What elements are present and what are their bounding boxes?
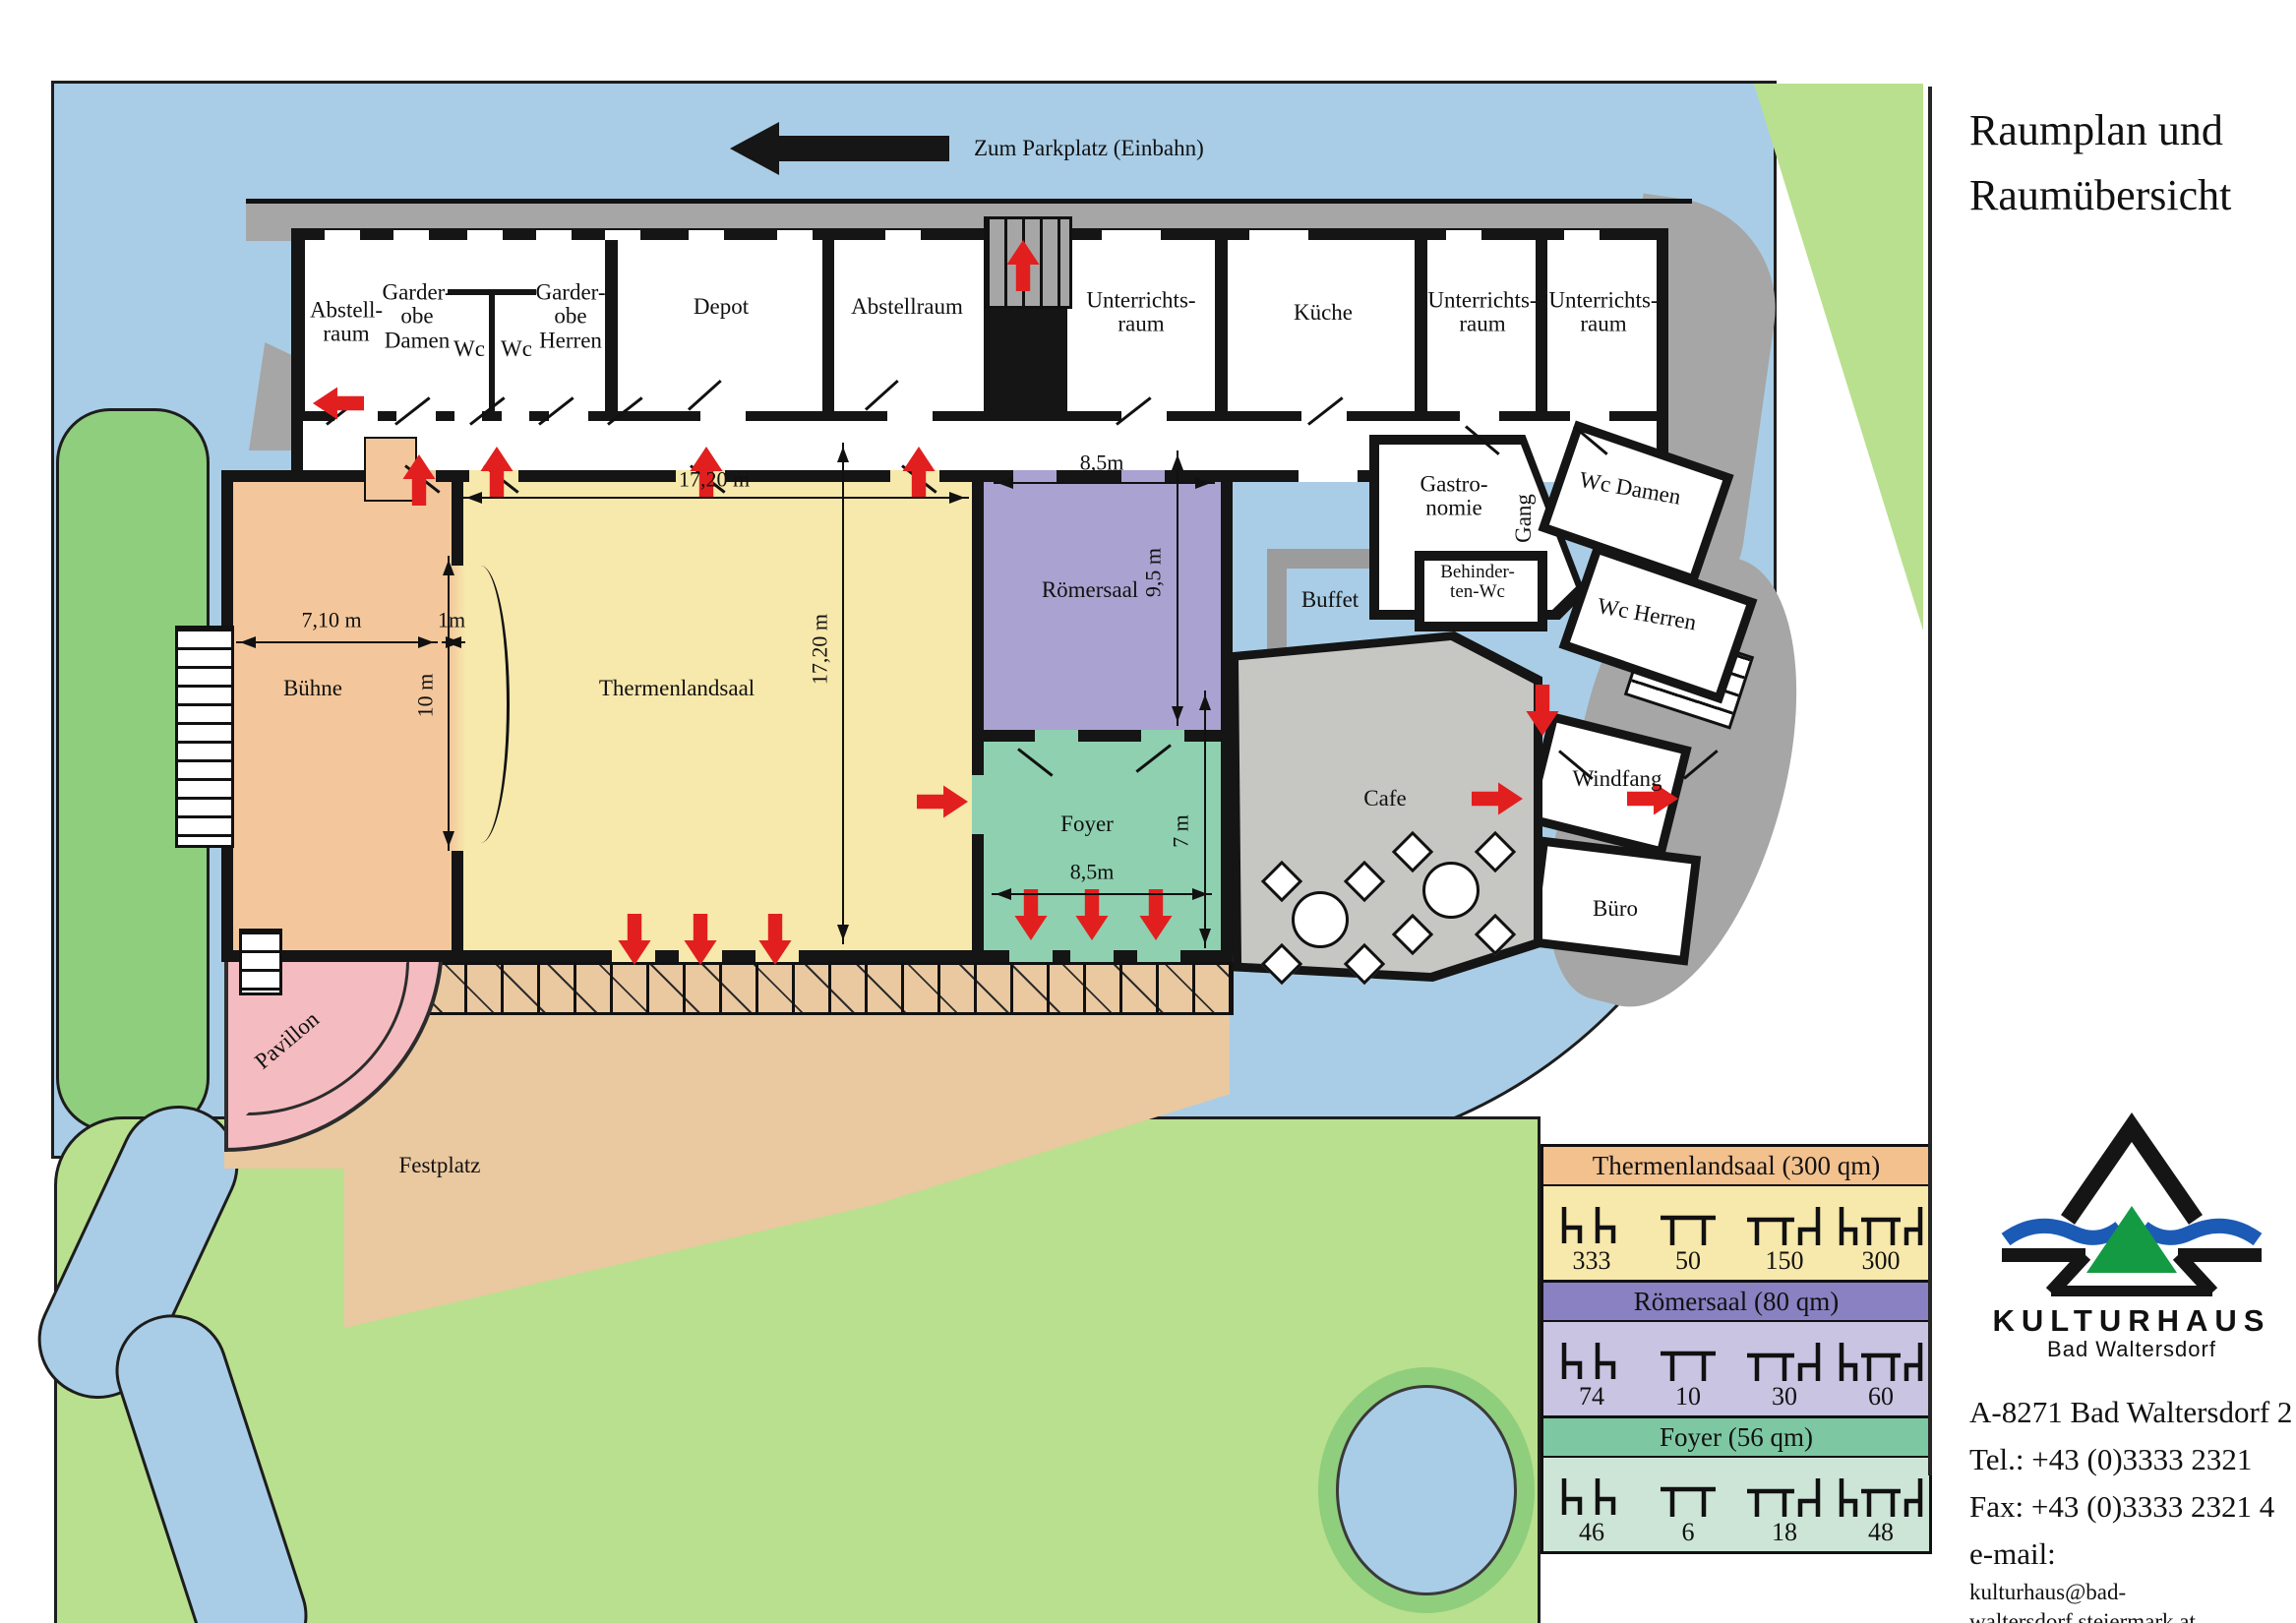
parking-label: Zum Parkplatz (Einbahn) — [974, 136, 1204, 161]
window — [885, 230, 921, 240]
capacity-value: 300 — [1862, 1247, 1901, 1276]
tables-icon — [1657, 1202, 1720, 1247]
floorplan-page: 17,20 m 17,20 m 8,5m 9,5 m 7,10 m 1m 10 … — [0, 0, 2296, 1623]
capacity-value: 74 — [1579, 1383, 1604, 1412]
table-with-chairs-icon — [1834, 1338, 1928, 1383]
dim-label-saal-width: 17,20 m — [679, 467, 750, 490]
dim-label-opening: 10 m — [413, 674, 436, 718]
window — [467, 230, 503, 240]
room-label-foyer: Foyer — [1060, 812, 1114, 836]
capacity-value: 6 — [1682, 1519, 1695, 1547]
room-label-unterrichtsraum-3: Unterrichts- raum — [1548, 289, 1658, 337]
window — [1249, 230, 1308, 240]
dim-label-saal-height: 17,20 m — [808, 614, 830, 685]
logo-subtitle: Bad Waltersdorf — [1969, 1337, 2294, 1362]
cafe-table — [1392, 831, 1510, 949]
window — [777, 230, 813, 240]
room-label-buehne: Bühne — [283, 677, 342, 700]
table-with-chair-icon — [1743, 1473, 1826, 1519]
door-gap — [502, 401, 529, 427]
room-label-wc-1: Wc — [453, 337, 485, 361]
capacity-value: 333 — [1573, 1247, 1611, 1276]
kulturhaus-logo: KULTURHAUS Bad Waltersdorf — [1969, 1090, 2294, 1362]
dim-label-roemer-height: 9,5 m — [1141, 548, 1164, 597]
area-label-festplatz: Festplatz — [398, 1154, 480, 1177]
room-label-buero: Büro — [1593, 897, 1638, 921]
capacity-value: 10 — [1675, 1383, 1701, 1412]
table-with-chair-icon — [1743, 1202, 1826, 1247]
parking-arrow-icon — [777, 136, 949, 161]
stage-ladder — [175, 626, 234, 848]
legend-title: Foyer (56 qm) — [1543, 1418, 1929, 1458]
door-gap — [1460, 401, 1499, 427]
tables-icon — [1657, 1473, 1720, 1519]
room-label-buffet: Buffet — [1301, 588, 1359, 612]
capacity-value: 46 — [1579, 1519, 1604, 1547]
room-label-gastronomie: Gastro- nomie — [1420, 473, 1488, 521]
small-ladder — [239, 929, 282, 995]
dim-label-proszenium: 1m — [438, 608, 465, 631]
window — [605, 230, 640, 240]
capacity-value: 18 — [1772, 1519, 1797, 1547]
table-with-chair-icon — [1743, 1338, 1826, 1383]
terrace-steps — [352, 962, 1234, 1015]
pond-ring — [1318, 1367, 1535, 1613]
dim-line-foyer-height — [1204, 691, 1206, 948]
contact-address: A-8271 Bad Waltersdorf 2 — [1969, 1389, 2296, 1436]
legend-section-roemersaal: Römersaal (80 qm) 74 10 30 60 — [1543, 1283, 1929, 1418]
pond — [1336, 1385, 1517, 1595]
rows-of-chairs-icon — [1554, 1473, 1629, 1519]
table-with-chairs-icon — [1834, 1473, 1928, 1519]
dim-line-opening — [448, 556, 450, 851]
page-title: Raumplan und Raumübersicht — [1969, 98, 2294, 228]
room-label-garderobe-damen: Garder- obe Damen — [382, 280, 452, 352]
capacity-value: 30 — [1772, 1383, 1797, 1412]
door-gap — [1121, 470, 1165, 482]
room-abstellraum-2 — [834, 240, 984, 411]
table-with-chairs-icon — [1834, 1202, 1928, 1247]
room-label-windfang: Windfang — [1572, 767, 1662, 791]
room-label-unterrichtsraum-1: Unterrichts- raum — [1086, 289, 1195, 337]
window — [325, 230, 360, 240]
room-label-garderobe-herren: Garder- obe Herren — [535, 280, 605, 352]
window — [536, 230, 572, 240]
room-label-unterrichtsraum-2: Unterrichts- raum — [1427, 289, 1537, 337]
contact-fax: Fax: +43 (0)3333 2321 4 — [1969, 1483, 2296, 1531]
window — [1102, 230, 1161, 240]
room-depot — [618, 240, 822, 411]
room-label-abstellraum-1: Abstell- raum — [310, 299, 383, 347]
contact-email: kulturhaus@bad-waltersdorf.steiermark.at — [1969, 1578, 2296, 1623]
legend-title: Thermenlandsaal (300 qm) — [1543, 1147, 1929, 1186]
dim-label-roemer-width: 8,5m — [1080, 451, 1124, 473]
room-label-thermenlandsaal: Thermenlandsaal — [599, 677, 755, 700]
room-kueche — [1228, 240, 1415, 411]
exit-gap — [1009, 950, 1053, 962]
capacity-value: 48 — [1868, 1519, 1894, 1547]
room-label-cafe: Cafe — [1363, 787, 1406, 811]
dim-line-saal-width — [462, 497, 969, 499]
panel-divider — [1928, 87, 1932, 1475]
dim-label-foyer-height: 7 m — [1169, 814, 1191, 848]
door-gap — [700, 401, 746, 427]
parking-arrow-icon — [730, 122, 779, 175]
dim-line-foyer-width — [992, 893, 1212, 895]
window — [1446, 230, 1481, 240]
dim-label-buehne-width: 7,10 m — [301, 608, 361, 631]
exit-gap — [1070, 950, 1114, 962]
logo-name: KULTURHAUS — [1969, 1303, 2294, 1339]
room-label-behinderten-wc: Behinder- ten-Wc — [1440, 563, 1515, 602]
room-label-roemersaal: Römersaal — [1042, 578, 1138, 602]
contact-tel: Tel.: +43 (0)3333 2321 — [1969, 1436, 2296, 1483]
room-label-kueche: Küche — [1294, 301, 1353, 325]
dim-line-saal-height — [842, 443, 844, 944]
hall-block — [221, 470, 1233, 962]
room-thermenlandsaal — [463, 482, 972, 950]
kulturhaus-logo-icon — [1984, 1090, 2279, 1296]
rows-of-chairs-icon — [1554, 1202, 1629, 1247]
door-gap — [1141, 730, 1184, 742]
contact-block: A-8271 Bad Waltersdorf 2 Tel.: +43 (0)33… — [1969, 1389, 2296, 1623]
contact-email-label: e-mail: — [1969, 1531, 2296, 1578]
door-gap — [1013, 470, 1057, 482]
room-label-wc-2: Wc — [501, 337, 532, 361]
dim-line-roemer-height — [1177, 451, 1178, 726]
room-label-depot: Depot — [694, 295, 749, 319]
page-title-line1: Raumplan und — [1969, 98, 2294, 163]
legend-section-foyer: Foyer (56 qm) 46 6 18 48 — [1543, 1418, 1929, 1551]
door-gap — [887, 401, 933, 427]
window — [1564, 230, 1600, 240]
legend-title: Römersaal (80 qm) — [1543, 1283, 1929, 1322]
room-label-abstellraum-2: Abstellraum — [851, 295, 963, 319]
capacity-value: 50 — [1675, 1247, 1701, 1276]
door-gap — [549, 401, 588, 427]
capacity-legend: Thermenlandsaal (300 qm) 333 50 150 300 … — [1541, 1144, 1932, 1554]
window — [393, 230, 429, 240]
door-gap — [1035, 730, 1078, 742]
page-title-line2: Raumübersicht — [1969, 163, 2294, 228]
cafe-table — [1261, 861, 1379, 979]
capacity-value: 150 — [1766, 1247, 1804, 1276]
tables-icon — [1657, 1338, 1720, 1383]
window — [689, 230, 724, 240]
room-wc-vestibule — [448, 240, 536, 289]
door-gap — [1299, 470, 1358, 482]
dim-line-roemer-width — [994, 482, 1215, 484]
dim-line-buehne-width — [236, 641, 438, 643]
room-label-gang: Gang — [1512, 494, 1536, 543]
dim-line-proszenium — [442, 641, 465, 643]
exit-gap — [1137, 950, 1180, 962]
capacity-value: 60 — [1868, 1383, 1894, 1412]
room-roemersaal — [984, 482, 1221, 730]
door-gap — [972, 775, 984, 834]
legend-section-thermenlandsaal: Thermenlandsaal (300 qm) 333 50 150 300 — [1543, 1147, 1929, 1283]
rows-of-chairs-icon — [1554, 1338, 1629, 1383]
dim-label-foyer-width: 8,5m — [1070, 860, 1115, 882]
